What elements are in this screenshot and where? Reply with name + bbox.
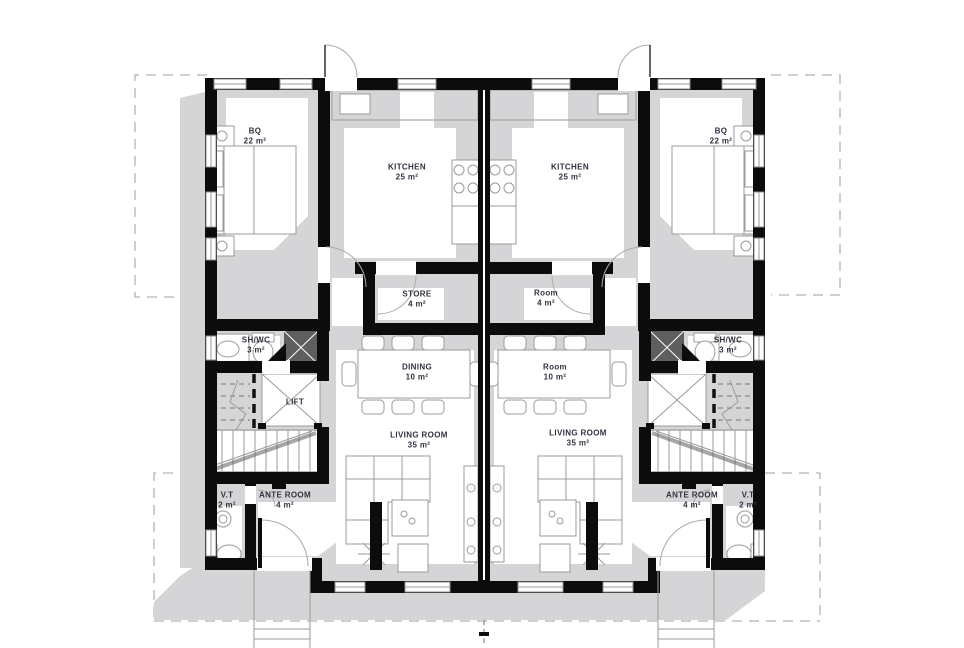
room-label-living-right: LIVING ROOM 35 m²: [549, 429, 607, 448]
scale-mark: [479, 632, 489, 636]
floor-plan: BQ 22 m² KITCHEN 25 m² STORE 4 m² SH/WC …: [0, 0, 964, 648]
room-label-shwc-left: SH/WC 3 m²: [242, 336, 270, 355]
room-label-room10-right: Room 10 m²: [543, 363, 567, 382]
room-label-bq-right: BQ 22 m²: [710, 127, 733, 146]
room-label-living-left: LIVING ROOM 35 m²: [390, 431, 448, 450]
console-left: [464, 466, 478, 562]
lift-right: [646, 374, 714, 430]
room-label-room4-right: Room 4 m²: [534, 289, 558, 308]
room-label-ante-right: ANTE ROOM 4 m²: [666, 491, 718, 510]
fridge-right: [488, 206, 516, 244]
vt-door-right: [682, 484, 696, 489]
room-label-kitchen-right: KITCHEN 25 m²: [551, 163, 589, 182]
floor-plan-drawing: [0, 0, 964, 648]
room-label-lift-left: LIFT: [286, 397, 304, 407]
fridge-left: [452, 206, 480, 244]
console-right: [490, 466, 504, 562]
entrance-door-left: [258, 518, 262, 568]
entrance-door-right: [706, 518, 710, 568]
room-label-bq-left: BQ 22 m²: [244, 127, 267, 146]
stove-right: [488, 160, 516, 206]
room-label-shwc-right: SH/WC 3 m²: [714, 336, 742, 355]
room-label-ante-left: ANTE ROOM 4 m²: [259, 491, 311, 510]
room-label-vt-right: V.T 2 m²: [739, 491, 757, 510]
bathroom-right: [650, 331, 761, 364]
room-label-dining-left: DINING 10 m²: [402, 363, 432, 382]
room-label-kitchen-left: KITCHEN 25 m²: [388, 163, 426, 182]
room-label-store-left: STORE 4 m²: [402, 290, 431, 309]
stove-left: [452, 160, 480, 206]
vt-door-left: [272, 484, 286, 489]
room-label-vt-left: V.T 2 m²: [218, 491, 236, 510]
